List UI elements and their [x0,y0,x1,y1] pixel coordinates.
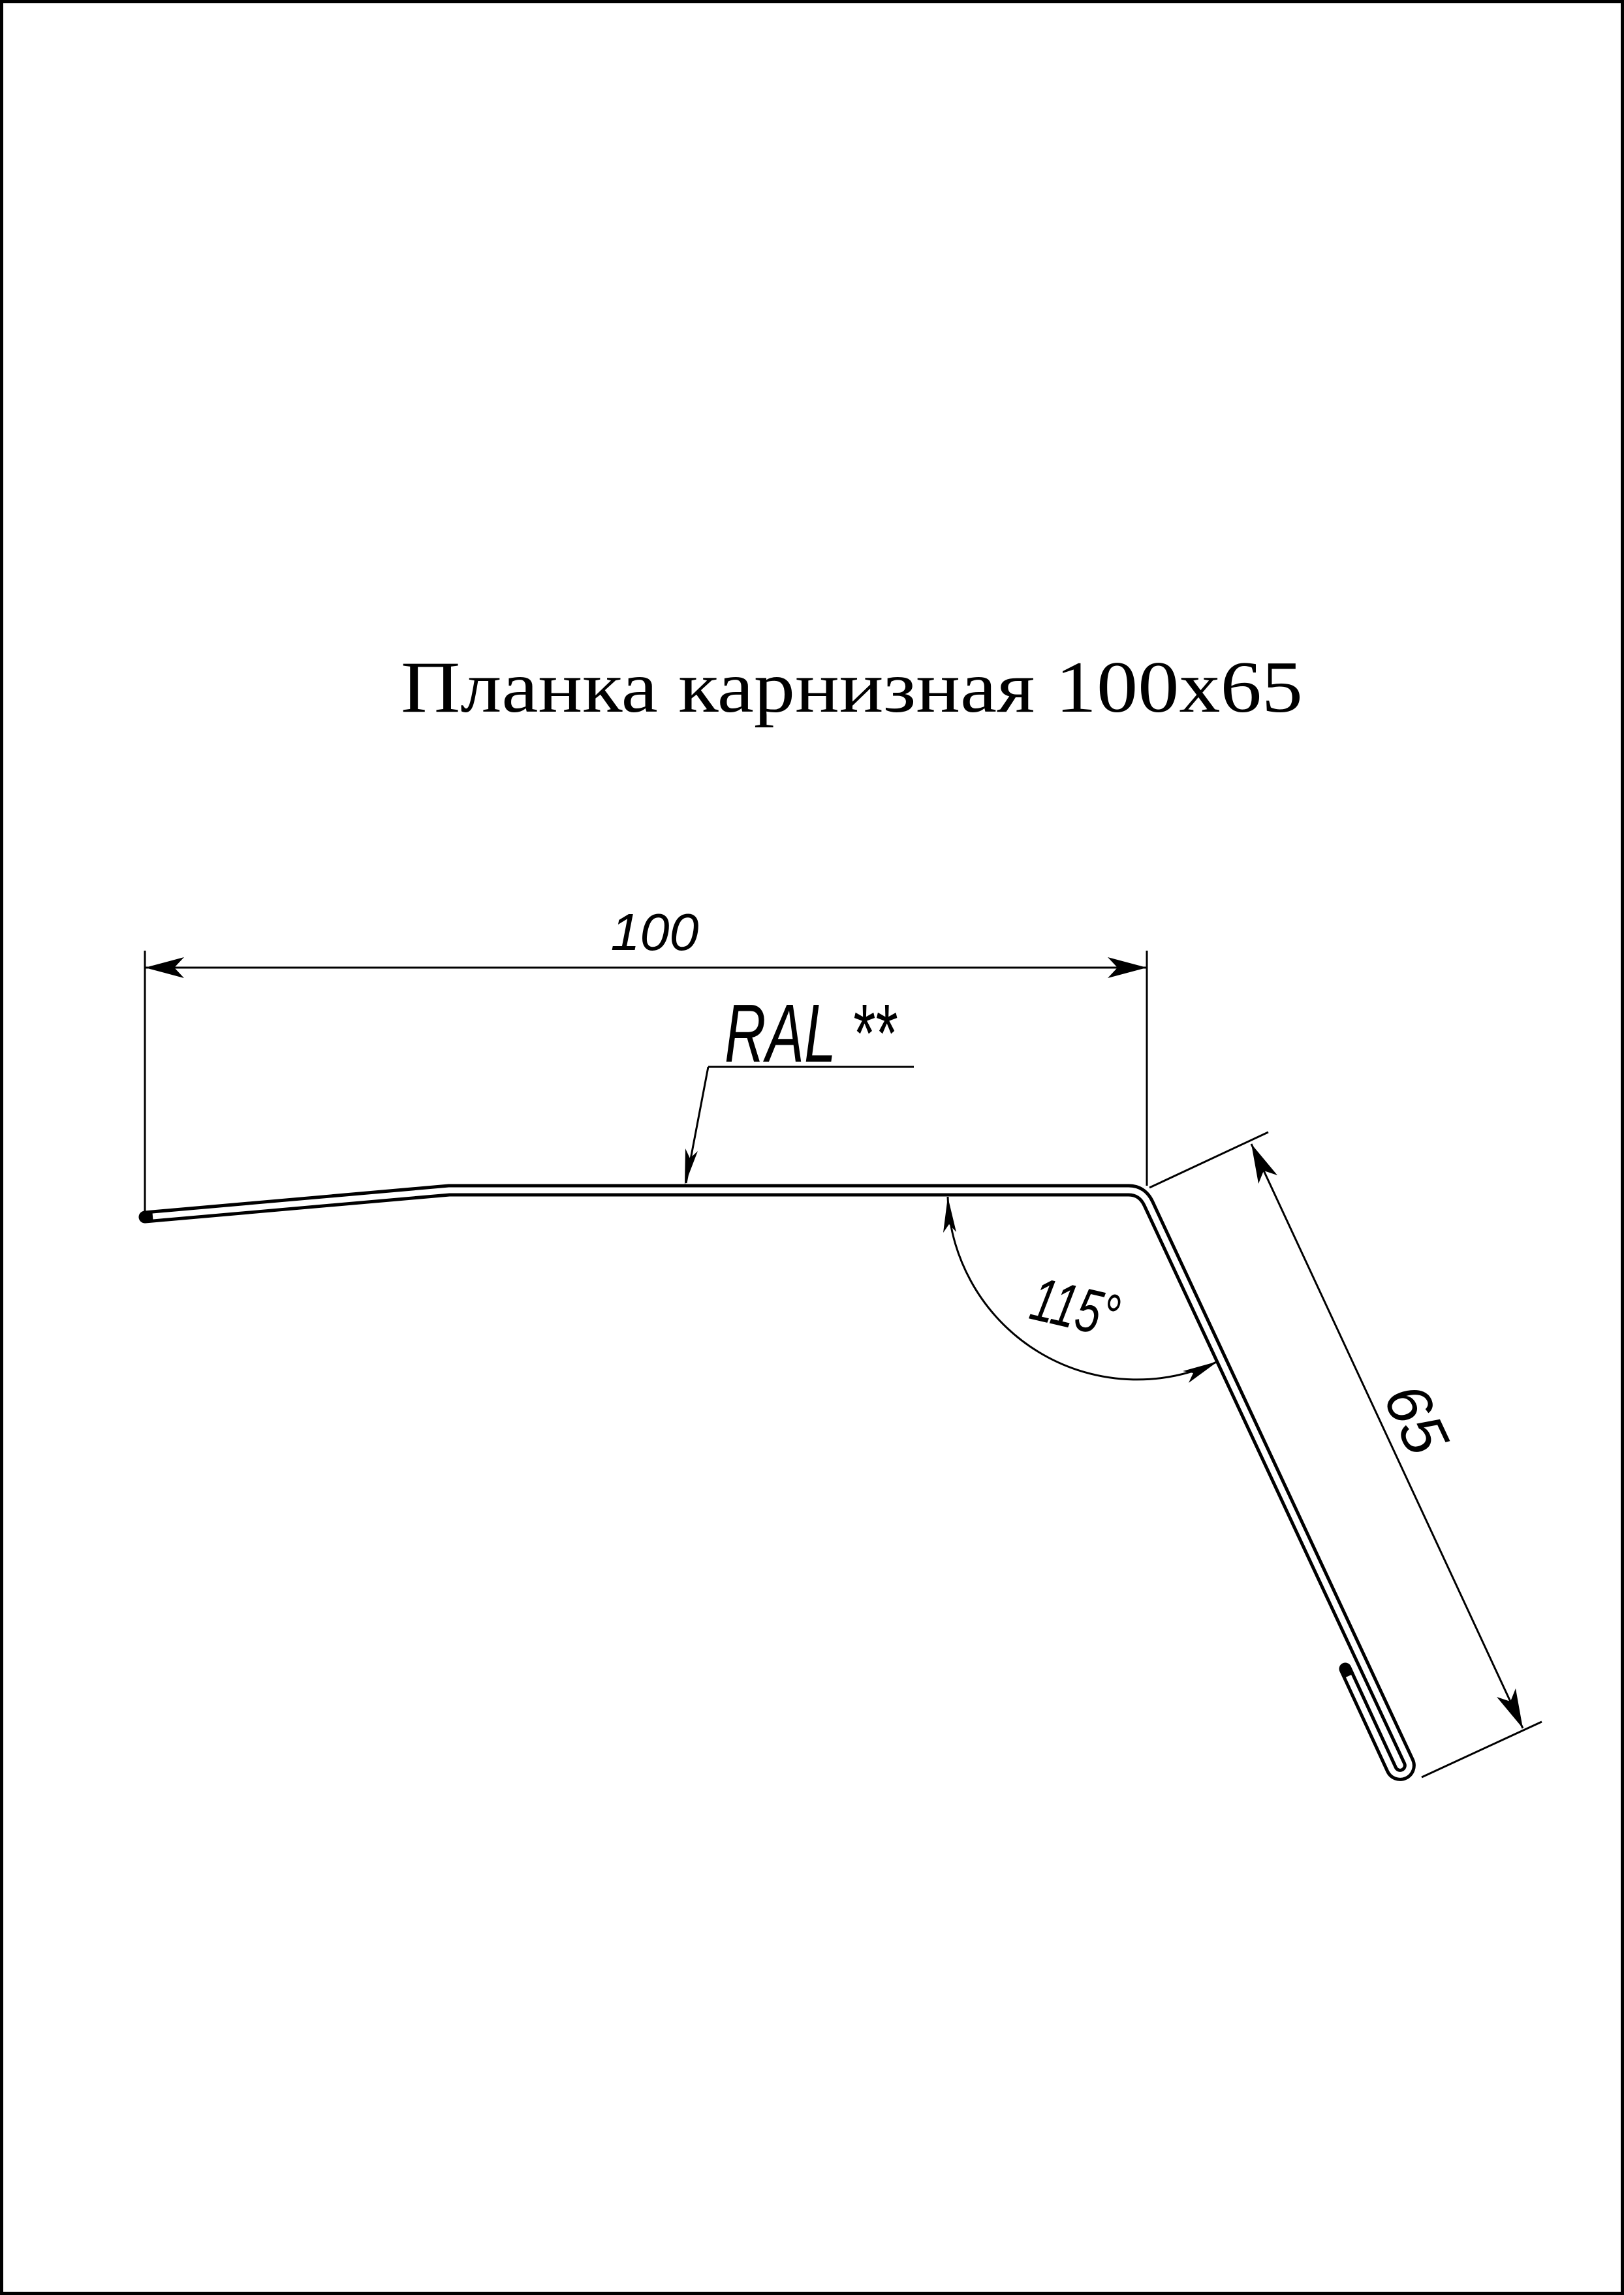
drawing-svg: Планка карнизная 100х65 100 RAL ** 115° … [0,0,1624,2295]
dim-65-ext-top [1149,1132,1268,1188]
dim-65-label: 65 [1370,1373,1462,1465]
angle-arrow-end [1183,1361,1218,1383]
page-frame [2,2,1623,2294]
dim-65-arrow-bottom [1497,1688,1523,1728]
drawing-page: Планка карнизная 100х65 100 RAL ** 115° … [0,0,1624,2295]
ral-label: RAL ** [725,987,898,1079]
page-title: Планка карнизная 100х65 [401,647,1303,728]
angle-arrow-start [943,1197,956,1233]
dim-65-ext-bottom [1422,1722,1542,1777]
profile-sheet-gap [153,1190,1409,1775]
dim-65-arrow-top [1251,1144,1277,1184]
angle-label: 115° [1025,1264,1126,1351]
profile-outline [145,1190,1409,1775]
dim-100-label: 100 [611,903,699,961]
